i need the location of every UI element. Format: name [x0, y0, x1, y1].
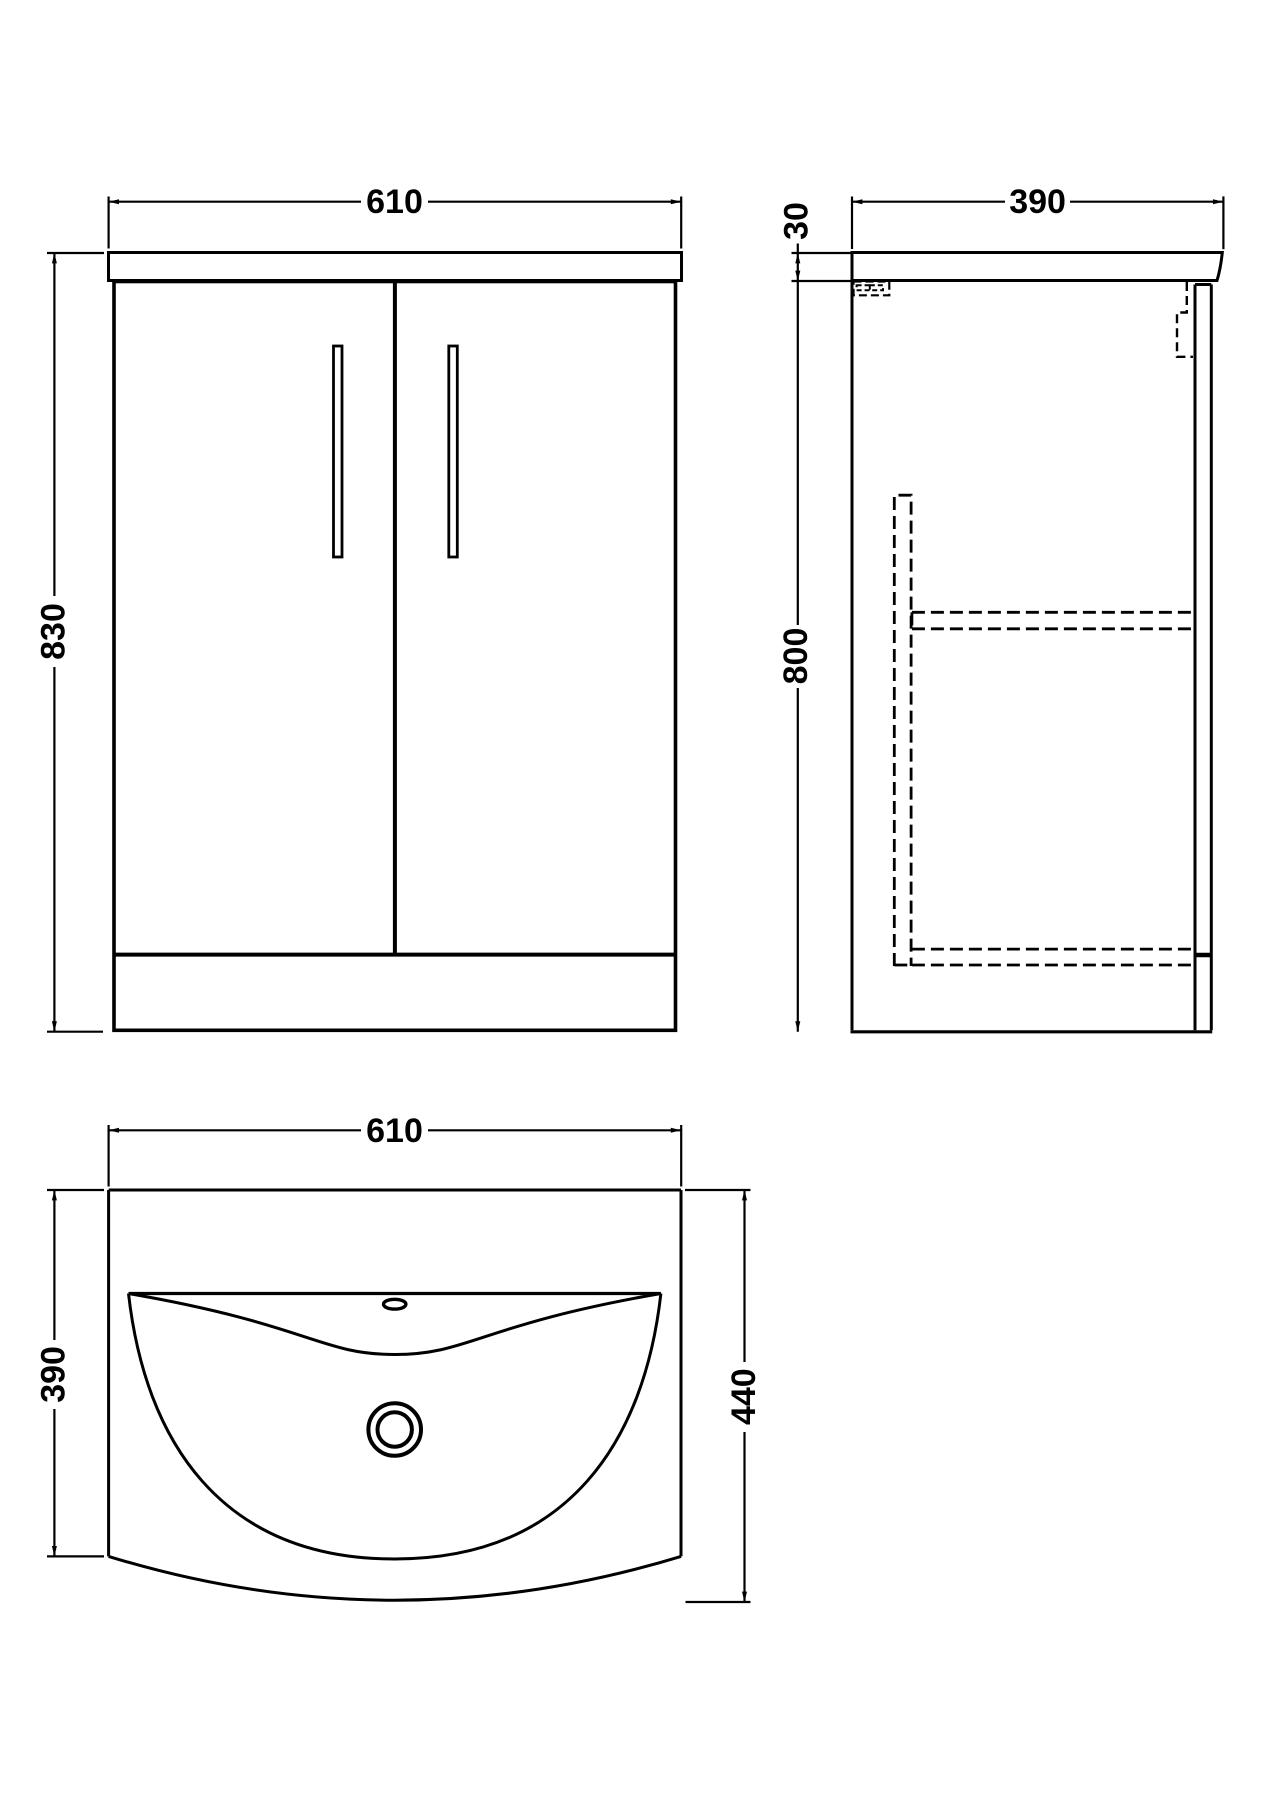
- svg-text:390: 390: [34, 1346, 72, 1403]
- svg-text:610: 610: [366, 1112, 423, 1150]
- svg-text:610: 610: [366, 183, 423, 221]
- svg-text:30: 30: [778, 202, 816, 240]
- svg-text:830: 830: [34, 603, 72, 660]
- svg-text:800: 800: [777, 628, 815, 685]
- svg-text:390: 390: [1009, 183, 1066, 221]
- svg-text:440: 440: [725, 1368, 763, 1425]
